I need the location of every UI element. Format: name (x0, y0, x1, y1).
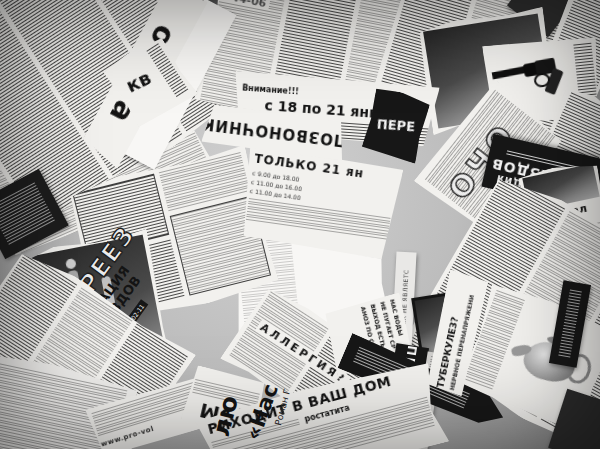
kv-headline: кв (122, 66, 154, 96)
attention-headline: Внимание!!! (242, 83, 299, 96)
newspaper-collage: -44-06 осква кв ОЧО (0, 0, 600, 449)
pere-text: ПЕРЕ (376, 116, 415, 134)
reversed-text (0, 182, 55, 245)
